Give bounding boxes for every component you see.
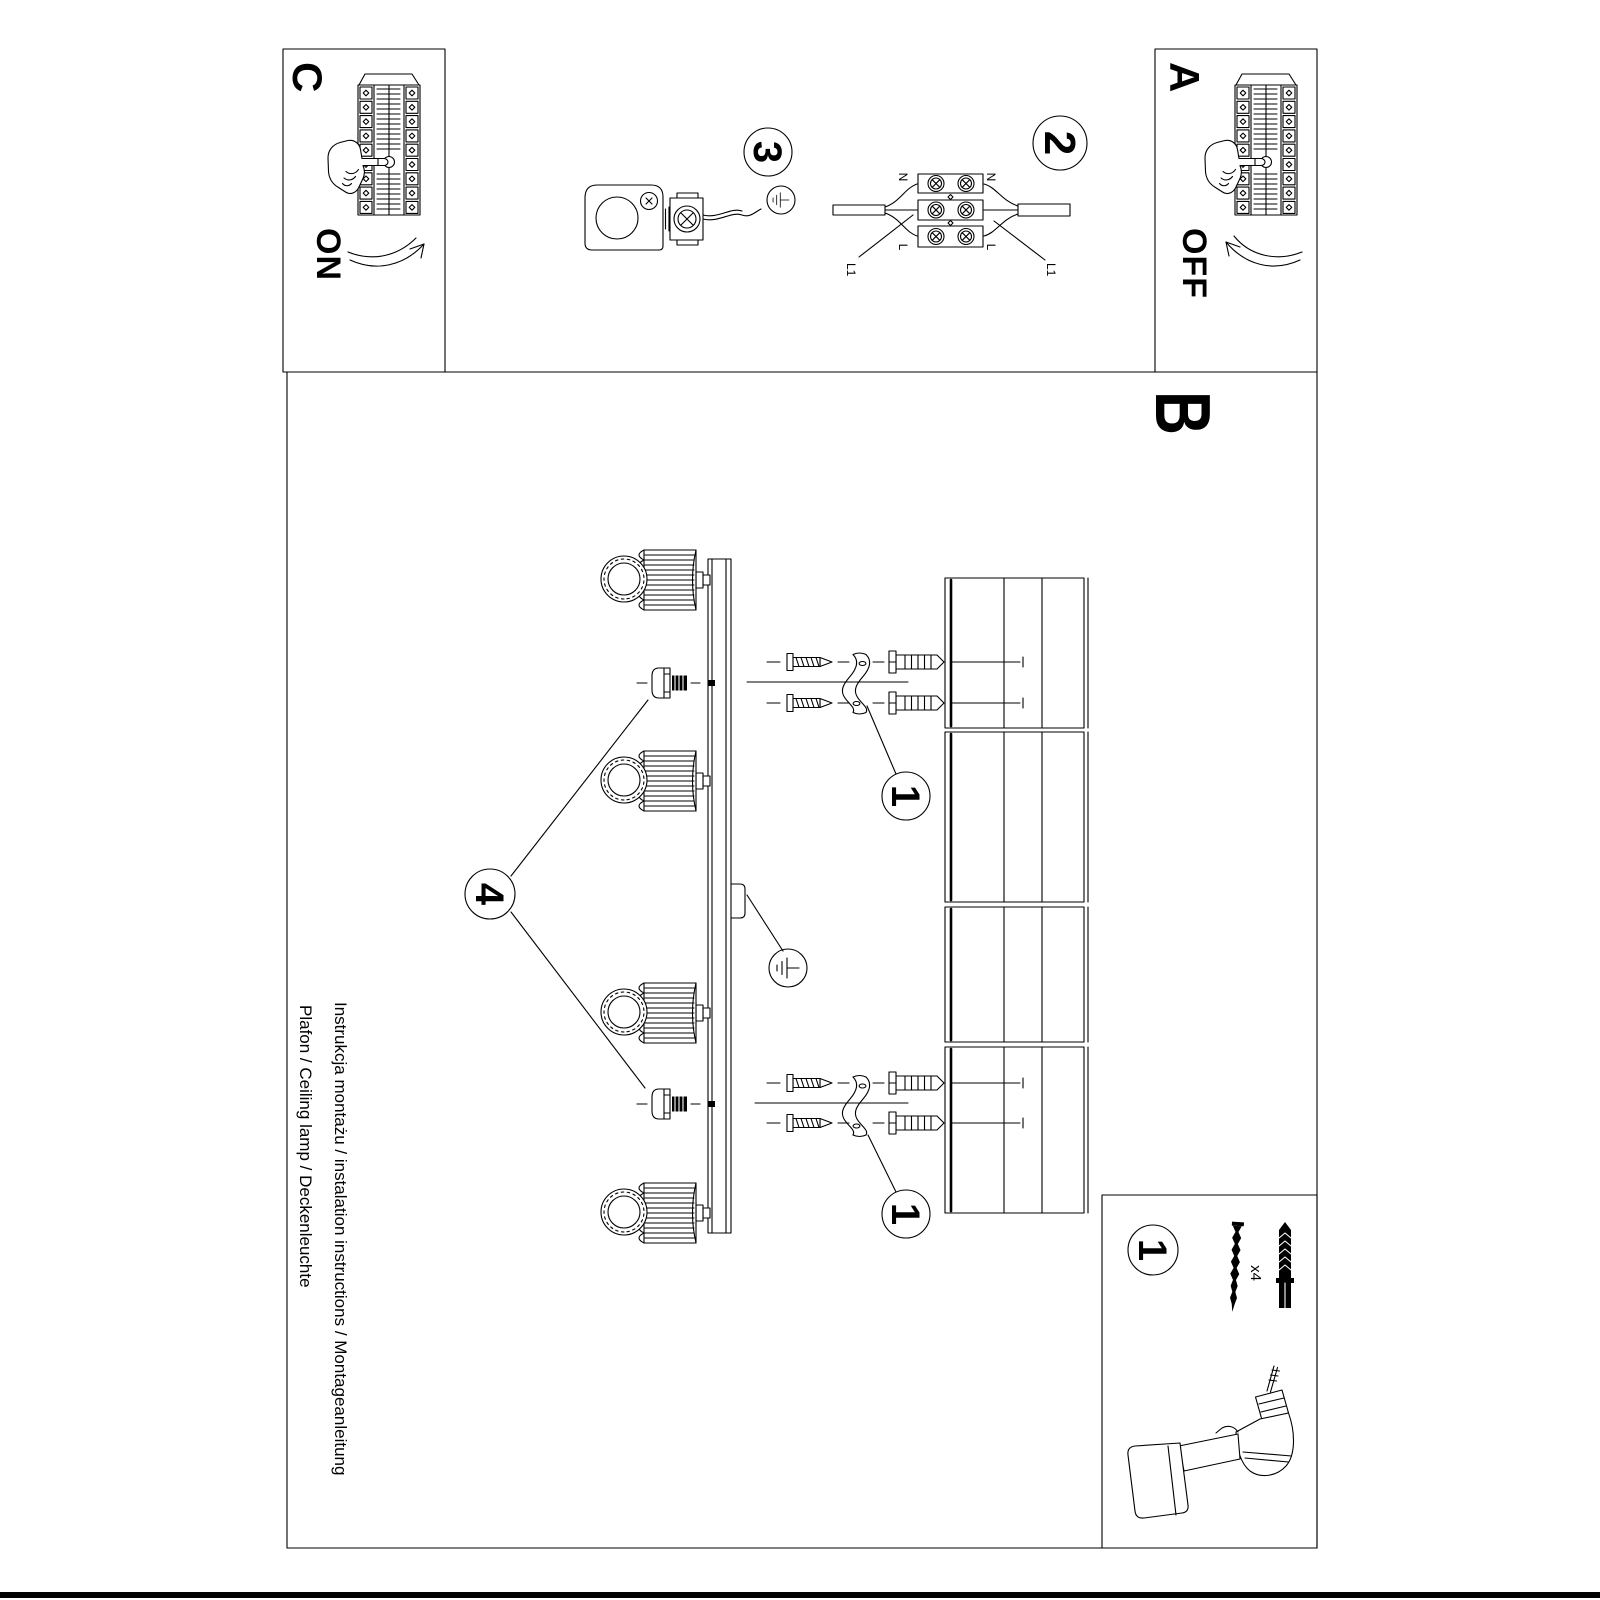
step-3-marker: 3	[744, 128, 792, 176]
off-label: OFF	[1175, 228, 1213, 299]
breaker-switch-c-icon	[358, 74, 420, 215]
parts-screw-icon	[1227, 1222, 1244, 1313]
spotlight-1	[601, 550, 710, 610]
svg-text:1: 1	[883, 1203, 927, 1225]
wire-label-l-bottom: L	[896, 244, 910, 251]
svg-text:2: 2	[1035, 131, 1084, 155]
svg-text:4: 4	[467, 883, 511, 906]
step-2-marker: 2	[1033, 116, 1087, 170]
earth-symbol-icon	[747, 895, 807, 987]
wire-label-l1-bottom: L1	[844, 263, 858, 277]
footer-line2: Plafon / Ceiling lamp / Deckenleuchte	[296, 1005, 315, 1288]
wire-label-n-top: N	[984, 173, 998, 182]
lamp-rail	[708, 559, 745, 1233]
earth-clamp-diagram	[585, 185, 795, 250]
panel-a-label: A	[1161, 62, 1208, 92]
drill-icon	[1128, 1366, 1294, 1518]
parts-marker: 1	[1128, 1225, 1178, 1275]
breaker-switch-a-icon	[1235, 74, 1297, 215]
on-label: ON	[309, 228, 347, 281]
wire-label-l1-top: L1	[1044, 263, 1058, 277]
on-arrow-icon	[348, 238, 424, 266]
spotlight-3	[601, 983, 710, 1043]
page-edge-shadow	[0, 1592, 1600, 1598]
svg-text:3: 3	[745, 141, 789, 163]
svg-text:1: 1	[883, 785, 927, 807]
step-1-marker-2: 1	[882, 1190, 930, 1238]
panel-c-label: C	[284, 62, 331, 92]
mount-hardware-group-2	[755, 1072, 1023, 1192]
terminal-block-diagram: N N L L L1 L1	[833, 173, 1070, 277]
svg-text:1: 1	[1130, 1239, 1174, 1261]
earth-symbol-small-icon	[767, 186, 795, 214]
main-diagram-frame	[287, 372, 1317, 1548]
spotlight-4	[601, 1183, 710, 1243]
footer-line1: Instrukcja montażu / instalation instruc…	[331, 1002, 350, 1475]
spotlight-2	[601, 751, 710, 811]
off-arrow-icon	[1226, 236, 1302, 266]
parts-anchor-icon	[1276, 1222, 1294, 1308]
thumbscrew-2	[637, 1089, 715, 1119]
panel-b-label: B	[1139, 391, 1227, 435]
wire-label-n-bottom: N	[896, 173, 910, 182]
parts-qty-label: x4	[1247, 1265, 1264, 1281]
mount-hardware-group-1	[747, 651, 1023, 774]
earth-tab	[731, 884, 745, 918]
rotated-sheet: 2	[0, 0, 1600, 1600]
wire-label-l-top: L	[984, 244, 998, 251]
instruction-sheet-page: 2	[0, 0, 1600, 1600]
ceiling-slab	[945, 578, 1088, 1213]
step-1-marker-1: 1	[882, 772, 930, 820]
thumbscrew-1	[637, 668, 715, 698]
